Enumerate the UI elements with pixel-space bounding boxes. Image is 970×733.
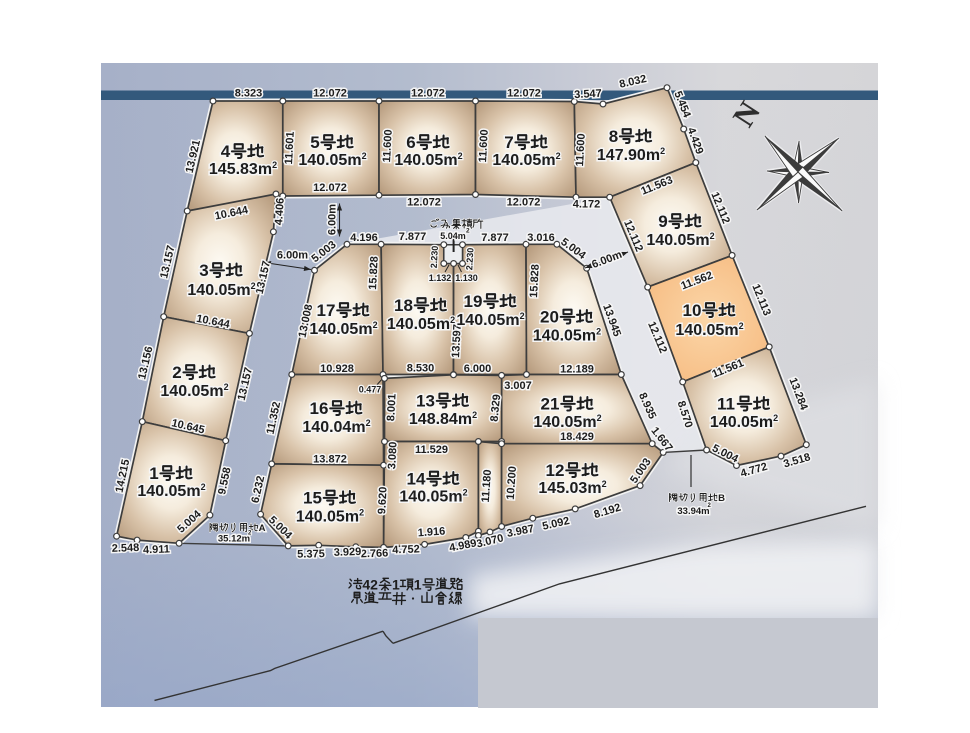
svg-text:2: 2 [597, 413, 602, 423]
svg-text:18: 18 [394, 296, 413, 315]
svg-text:5.04m: 5.04m [440, 231, 466, 241]
svg-text:10.200: 10.200 [505, 466, 519, 500]
svg-text:2: 2 [739, 321, 744, 331]
svg-text:145.03m: 145.03m [538, 480, 601, 497]
svg-text:15.828: 15.828 [367, 256, 381, 290]
svg-text:12.072: 12.072 [507, 196, 541, 208]
svg-text:7.877: 7.877 [399, 231, 427, 243]
svg-text:12.189: 12.189 [560, 363, 594, 375]
svg-text:4.172: 4.172 [573, 198, 601, 210]
svg-text:140.05m: 140.05m [296, 508, 359, 525]
svg-text:13.872: 13.872 [313, 453, 347, 465]
svg-text:B: B [718, 493, 725, 504]
svg-text:8.323: 8.323 [235, 87, 263, 99]
svg-text:15.828: 15.828 [528, 264, 542, 298]
svg-text:2: 2 [520, 311, 525, 321]
svg-text:2: 2 [660, 146, 665, 156]
svg-text:9: 9 [658, 212, 667, 231]
svg-text:20: 20 [540, 308, 559, 327]
svg-text:3.080: 3.080 [386, 441, 399, 469]
svg-text:3: 3 [199, 261, 208, 280]
svg-text:6.00m: 6.00m [277, 249, 308, 261]
svg-text:2: 2 [362, 151, 367, 161]
svg-text:2.230: 2.230 [429, 245, 440, 268]
svg-text:140.05m: 140.05m [675, 322, 738, 339]
svg-text:12.072: 12.072 [313, 182, 347, 194]
svg-text:140.05m: 140.05m [137, 483, 200, 500]
svg-text:2: 2 [224, 382, 229, 392]
svg-text:17: 17 [317, 301, 336, 320]
svg-text:42: 42 [362, 577, 378, 593]
svg-text:4: 4 [221, 142, 231, 161]
svg-text:16: 16 [310, 399, 329, 418]
svg-text:14: 14 [407, 470, 426, 489]
svg-text:140.05m: 140.05m [456, 312, 519, 329]
svg-text:7: 7 [504, 133, 513, 152]
svg-text:2: 2 [466, 228, 470, 235]
svg-text:140.05m: 140.05m [646, 232, 709, 249]
svg-text:2: 2 [373, 320, 378, 330]
svg-text:140.05m: 140.05m [533, 414, 596, 431]
svg-text:140.04m: 140.04m [302, 419, 365, 436]
svg-text:12.072: 12.072 [411, 87, 445, 99]
svg-text:8.001: 8.001 [385, 393, 398, 421]
svg-text:10: 10 [683, 301, 702, 320]
svg-text:2: 2 [172, 363, 181, 382]
svg-text:140.05m: 140.05m [298, 152, 361, 169]
svg-text:1.130: 1.130 [455, 273, 478, 283]
svg-text:2: 2 [602, 479, 607, 489]
svg-text:33.94m: 33.94m [677, 506, 709, 517]
svg-text:2: 2 [458, 151, 463, 161]
svg-text:0.477: 0.477 [359, 384, 382, 394]
svg-text:4.196: 4.196 [350, 232, 378, 244]
svg-text:11.600: 11.600 [477, 129, 491, 163]
svg-text:12.072: 12.072 [407, 196, 441, 208]
svg-text:5: 5 [310, 133, 319, 152]
svg-text:2: 2 [472, 410, 477, 420]
svg-text:140.05m: 140.05m [394, 152, 457, 169]
svg-text:10.928: 10.928 [320, 363, 354, 375]
svg-text:1.132: 1.132 [429, 273, 452, 283]
svg-text:8.530: 8.530 [407, 362, 435, 374]
svg-text:2: 2 [596, 327, 601, 337]
svg-text:12.072: 12.072 [313, 87, 347, 99]
svg-text:1: 1 [392, 577, 400, 593]
svg-text:11.600: 11.600 [381, 129, 395, 163]
svg-text:148.84m: 148.84m [409, 411, 472, 428]
svg-text:140.05m: 140.05m [710, 414, 773, 431]
svg-text:4.406: 4.406 [273, 197, 287, 225]
svg-text:2: 2 [272, 160, 277, 170]
svg-text:140.05m: 140.05m [387, 316, 450, 333]
svg-text:5.375: 5.375 [297, 548, 325, 560]
svg-text:19: 19 [464, 292, 483, 311]
svg-text:2.548: 2.548 [112, 542, 140, 555]
svg-text:140.05m: 140.05m [309, 321, 372, 338]
svg-text:145.83m: 145.83m [209, 161, 272, 178]
svg-text:1: 1 [414, 577, 422, 593]
svg-text:2: 2 [359, 508, 364, 518]
svg-text:15: 15 [303, 489, 322, 508]
svg-text:4.911: 4.911 [143, 543, 170, 556]
svg-text:140.05m: 140.05m [160, 383, 223, 400]
svg-text:21: 21 [541, 395, 560, 414]
svg-text:12: 12 [546, 461, 565, 480]
svg-text:3.007: 3.007 [504, 380, 532, 392]
svg-text:1: 1 [149, 464, 158, 483]
svg-text:18.429: 18.429 [560, 431, 594, 443]
svg-text:2: 2 [773, 413, 778, 423]
svg-text:2: 2 [556, 151, 561, 161]
svg-text:6.00m: 6.00m [326, 204, 338, 235]
svg-text:2: 2 [710, 231, 715, 241]
svg-text:2: 2 [251, 281, 256, 291]
svg-text:9.620: 9.620 [376, 486, 389, 514]
svg-text:11.529: 11.529 [415, 444, 448, 456]
svg-text:147.90m: 147.90m [597, 147, 660, 164]
svg-text:11.601: 11.601 [283, 131, 297, 165]
svg-text:140.05m: 140.05m [187, 282, 250, 299]
svg-text:3.929: 3.929 [334, 546, 362, 559]
svg-text:1.916: 1.916 [417, 525, 445, 539]
svg-text:2.230: 2.230 [464, 247, 475, 270]
svg-text:11.180: 11.180 [480, 469, 494, 503]
svg-text:7.877: 7.877 [481, 232, 509, 244]
svg-text:13: 13 [416, 392, 435, 411]
svg-text:3.547: 3.547 [574, 88, 602, 101]
svg-text:11: 11 [717, 395, 735, 414]
svg-text:6: 6 [406, 133, 415, 152]
svg-text:11.600: 11.600 [574, 133, 588, 167]
svg-text:12.072: 12.072 [507, 87, 541, 99]
svg-text:140.05m: 140.05m [533, 327, 596, 344]
svg-text:140.05m: 140.05m [492, 152, 555, 169]
svg-text:4.752: 4.752 [392, 543, 420, 556]
svg-text:8: 8 [609, 127, 618, 146]
svg-text:13.597: 13.597 [450, 324, 464, 358]
svg-text:3.016: 3.016 [527, 232, 555, 244]
svg-text:2: 2 [201, 482, 206, 492]
svg-text:2: 2 [450, 315, 455, 325]
svg-text:2.766: 2.766 [361, 547, 389, 560]
svg-text:35.12m: 35.12m [218, 533, 250, 544]
svg-text:2: 2 [366, 418, 371, 428]
svg-text:140.05m: 140.05m [399, 488, 462, 505]
svg-text:A: A [259, 523, 266, 534]
svg-text:2: 2 [463, 488, 468, 498]
svg-text:6.000: 6.000 [464, 363, 492, 375]
